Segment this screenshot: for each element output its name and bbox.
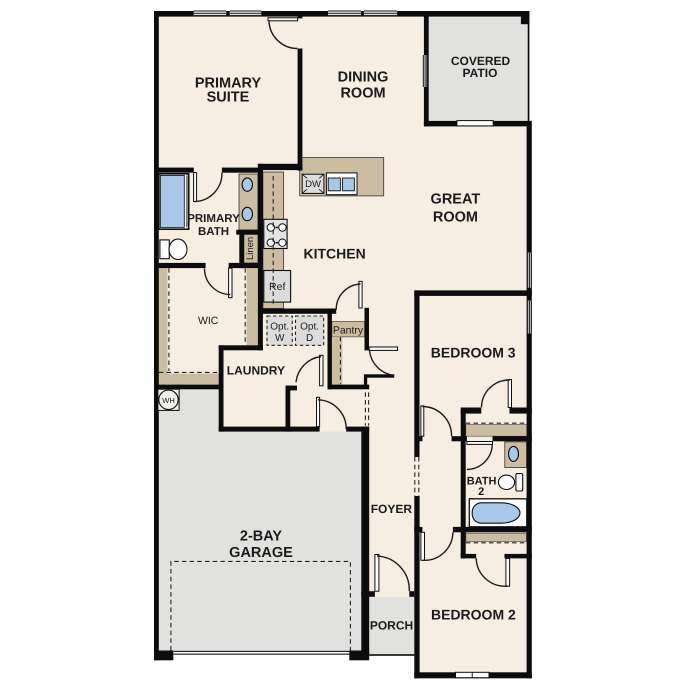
- svg-text:GARAGE: GARAGE: [229, 545, 293, 561]
- svg-text:ROOM: ROOM: [340, 86, 385, 102]
- svg-text:PATIO: PATIO: [463, 66, 498, 80]
- svg-text:Linen: Linen: [245, 237, 256, 260]
- svg-text:DINING: DINING: [338, 70, 389, 86]
- svg-text:DW: DW: [305, 179, 321, 190]
- svg-text:PRIMARY: PRIMARY: [187, 213, 240, 225]
- svg-text:ROOM: ROOM: [433, 209, 478, 225]
- svg-text:2-BAY: 2-BAY: [240, 529, 283, 545]
- svg-text:KITCHEN: KITCHEN: [303, 246, 365, 262]
- svg-text:BEDROOM 2: BEDROOM 2: [431, 606, 516, 622]
- svg-text:Opt.: Opt.: [300, 322, 319, 333]
- svg-text:PORCH: PORCH: [370, 619, 413, 633]
- svg-text:FOYER: FOYER: [371, 502, 413, 516]
- svg-text:SUITE: SUITE: [207, 90, 250, 106]
- svg-text:WH: WH: [162, 396, 175, 405]
- svg-text:Opt.: Opt.: [270, 322, 289, 333]
- svg-text:2: 2: [478, 486, 484, 498]
- svg-text:GREAT: GREAT: [431, 192, 481, 208]
- svg-text:Ref: Ref: [269, 281, 285, 293]
- svg-text:BEDROOM 3: BEDROOM 3: [431, 344, 516, 360]
- svg-text:W: W: [275, 333, 285, 344]
- svg-text:LAUNDRY: LAUNDRY: [227, 364, 285, 378]
- svg-text:BATH: BATH: [198, 226, 229, 238]
- svg-text:WIC: WIC: [198, 315, 219, 327]
- svg-text:Pantry: Pantry: [333, 324, 364, 336]
- svg-text:D: D: [306, 333, 313, 344]
